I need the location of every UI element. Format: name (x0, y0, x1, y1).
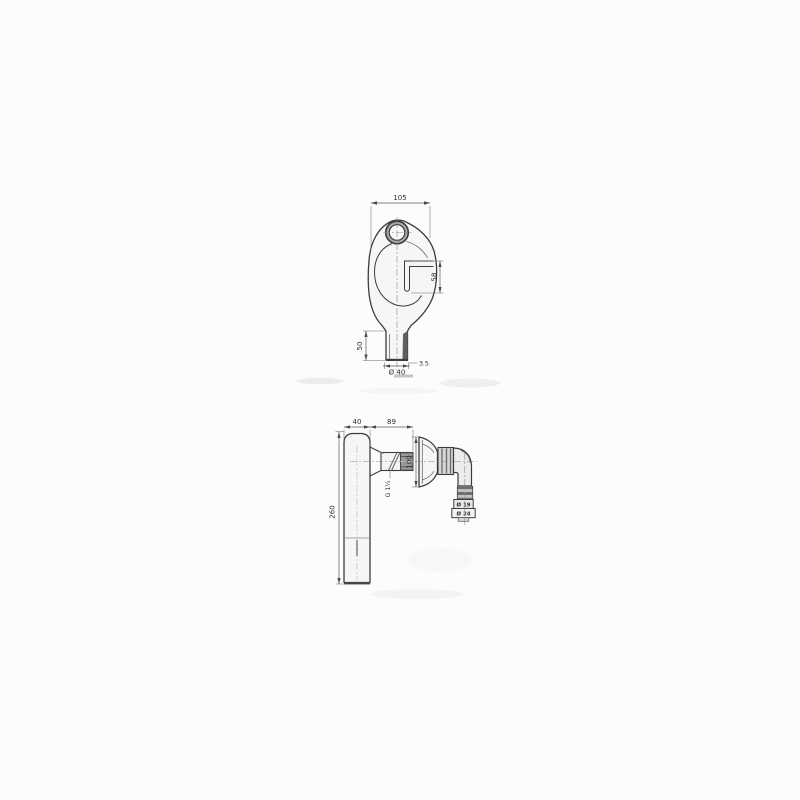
elbow-fitting (454, 448, 472, 486)
arrow (364, 331, 367, 337)
hose-connector: Ø 19 Ø 24 (452, 486, 475, 521)
scan-smudge (371, 589, 463, 599)
arrow (414, 481, 417, 487)
arrow (438, 261, 441, 267)
dim-label-50: 50 (356, 342, 364, 351)
arrow (370, 425, 376, 428)
arrow (407, 425, 413, 428)
arrow (385, 364, 391, 367)
dim-label-thread: G 1¼ (385, 481, 392, 498)
scan-smudge (408, 548, 472, 572)
dim-outlet-diameter: Ø 40 (383, 363, 410, 377)
arrow (337, 578, 340, 584)
dim-thread-size: G 1¼ (385, 471, 392, 497)
arrow (438, 287, 441, 293)
dim-label-105: 105 (393, 194, 406, 202)
dim-body-height: 260 (329, 432, 344, 585)
shoulder-bottom (370, 471, 381, 477)
arrow (337, 432, 340, 438)
dim-label-o24: Ø 24 (457, 511, 471, 518)
dim-label-o19: Ø 19 (457, 501, 471, 508)
arrow (344, 425, 350, 428)
shoulder-inner (377, 450, 384, 454)
arrow (403, 364, 409, 367)
dim-label-o40: Ø 40 (389, 369, 406, 377)
dim-label-40: 40 (353, 418, 362, 426)
dim-rosette-height: 100 (406, 437, 420, 487)
technical-drawing-page: 105 58 50 3.5 (0, 0, 800, 800)
standpipe-bottom-edge (344, 582, 370, 584)
dim-outlet-length: 50 (356, 331, 386, 361)
siphon-technical-drawing: 105 58 50 3.5 (0, 0, 800, 800)
rosette-profile (419, 437, 438, 487)
dim-label-58: 58 (431, 273, 439, 282)
top-view-drawing: 105 58 50 3.5 (356, 194, 444, 377)
wall-rosette (419, 437, 438, 487)
hose-tip (458, 518, 469, 522)
scan-smudge (358, 388, 438, 394)
dim-label-89: 89 (387, 418, 396, 426)
dim-label-260: 260 (329, 505, 337, 518)
arrow (424, 201, 430, 205)
dim-wall-thickness: 3.5 (409, 361, 429, 368)
arrow (414, 437, 417, 443)
scan-smudge (440, 379, 500, 388)
outlet-wall-shade (403, 331, 408, 360)
arrow (364, 355, 367, 361)
dim-label-3-5: 3.5 (419, 361, 429, 368)
union-nut (438, 448, 454, 475)
arrow (371, 201, 377, 205)
arrow (364, 425, 370, 428)
dim-label-100: 100 (406, 455, 414, 468)
scan-smudge (296, 378, 344, 384)
nut-body (438, 448, 454, 475)
